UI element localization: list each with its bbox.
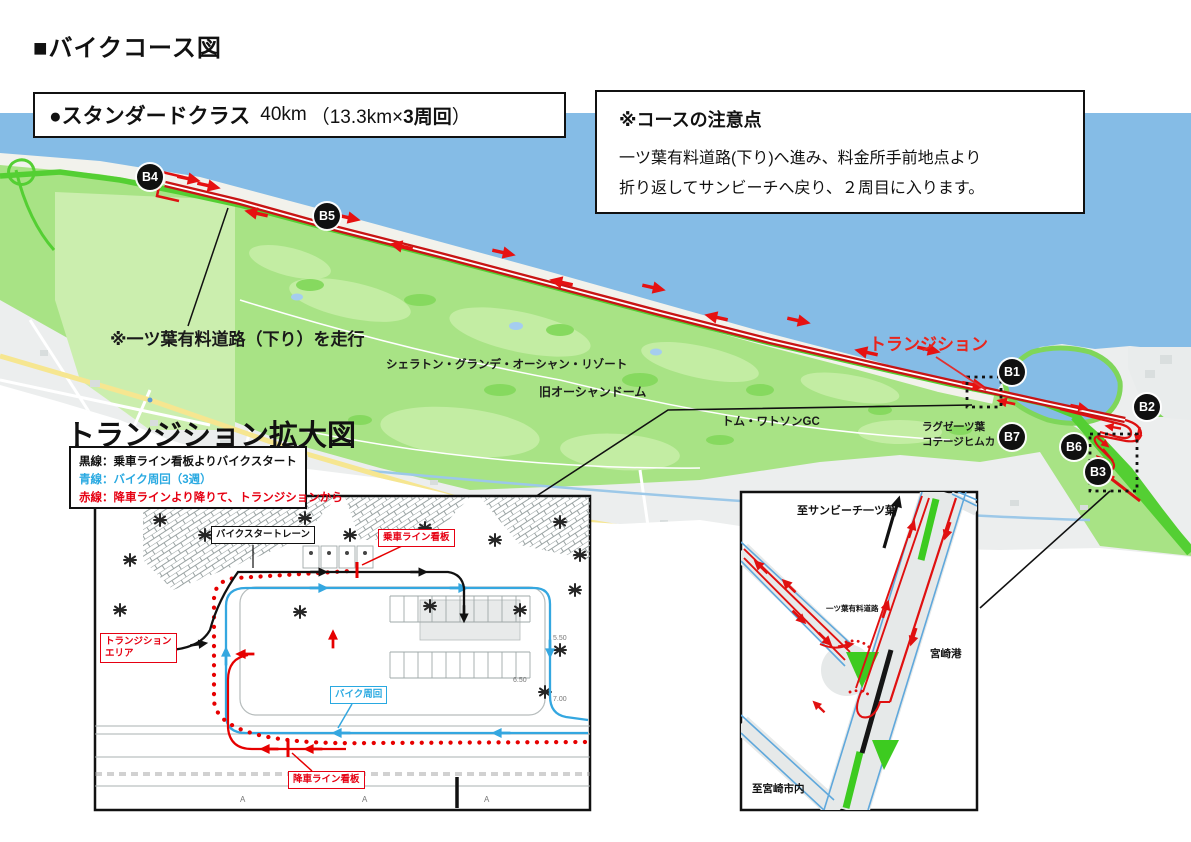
- plan-number: 5.50: [553, 635, 567, 642]
- label-toll-road: 一ツ葉有料道路: [826, 603, 879, 614]
- plan-mark-a: A: [240, 795, 245, 804]
- course-class-header: ●スタンダードクラス 40km （13.3km×3周回）: [33, 92, 566, 138]
- marker-b2: B2: [1134, 394, 1160, 420]
- toll-road-note: ※一ツ葉有料道路（下り）を走行: [110, 325, 365, 350]
- marker-b5: B5: [314, 203, 340, 229]
- marker-b3: B3: [1085, 459, 1111, 485]
- label-dismount-sign: 降車ライン看板: [288, 771, 365, 789]
- plan-number: 7.00: [553, 696, 567, 703]
- class-laps: （13.3km×3周回）: [311, 102, 471, 129]
- class-name: ●スタンダードクラス: [49, 100, 250, 130]
- plan-mark-a: A: [484, 795, 489, 804]
- label-bike-start-lane: バイクスタートレーン: [211, 526, 315, 544]
- label-mount-sign: 乗車ライン看板: [378, 529, 455, 547]
- place-luxze: ラグゼ一ツ葉コテージヒムカ: [922, 420, 995, 449]
- legend-blue-line: 青線：バイク周回（3週）: [79, 472, 297, 490]
- place-ocean-dome: 旧オーシャンドーム: [539, 383, 646, 400]
- plan-number: 6.50: [513, 677, 527, 684]
- transition-label: トランジション: [869, 330, 988, 355]
- notes-heading: ※コースの注意点: [619, 106, 1083, 132]
- class-distance: 40km: [260, 104, 306, 126]
- marker-b1: B1: [999, 359, 1025, 385]
- place-sheraton: シェラトン・グランデ・オーシャン・リゾート: [386, 356, 627, 372]
- marker-b7: B7: [999, 424, 1025, 450]
- plan-mark-a: A: [362, 795, 367, 804]
- course-notes: ※コースの注意点 一ツ葉有料道路(下り)へ進み、料金所手前地点より 折り返してサ…: [595, 90, 1085, 214]
- label-transition-area: トランジションエリア: [100, 633, 177, 663]
- legend-red-line: 赤線：降車ラインより降りて、トランジションから: [79, 490, 297, 508]
- marker-b6: B6: [1061, 434, 1087, 460]
- place-tom-watson: トム・ワトソンGC: [722, 413, 820, 429]
- label-to-miyazaki-city: 至宮崎市内: [752, 781, 805, 796]
- label-bike-loop: バイク周回: [330, 686, 387, 704]
- legend-black-line: 黒線：乗車ライン看板よりバイクスタート: [79, 454, 297, 472]
- label-miyazaki-port: 宮崎港: [930, 646, 962, 661]
- notes-body: 一ツ葉有料道路(下り)へ進み、料金所手前地点より 折り返してサンビーチへ戻り、２…: [619, 144, 1083, 203]
- label-to-sunbeach: 至サンビーチ一ツ葉: [797, 502, 896, 518]
- marker-b4: B4: [137, 164, 163, 190]
- legend-box: 黒線：乗車ライン看板よりバイクスタート 青線：バイク周回（3週） 赤線：降車ライ…: [69, 446, 307, 509]
